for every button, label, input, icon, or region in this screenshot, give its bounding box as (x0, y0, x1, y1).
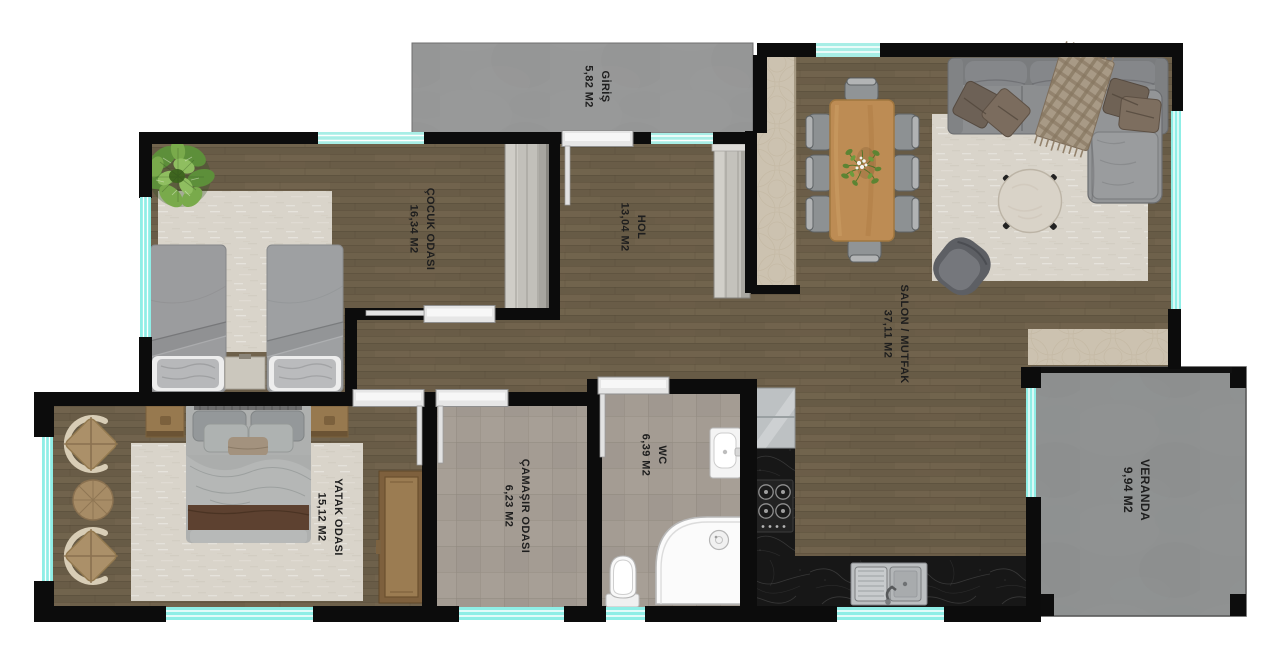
svg-text:ÇAMAŞIR ODASI: ÇAMAŞIR ODASI (519, 459, 531, 553)
svg-text:5,82 M2: 5,82 M2 (583, 65, 595, 108)
svg-text:16,34 M2: 16,34 M2 (408, 204, 420, 253)
svg-text:9,94 M2: 9,94 M2 (1121, 467, 1135, 513)
svg-text:37,11 M2: 37,11 M2 (882, 310, 894, 358)
svg-text:15,12 M2: 15,12 M2 (316, 492, 328, 541)
svg-text:HOL: HOL (635, 215, 647, 239)
svg-text:WC: WC (656, 445, 668, 464)
svg-text:6,23 M2: 6,23 M2 (503, 485, 515, 528)
svg-text:SALON / MUTFAK: SALON / MUTFAK (898, 284, 910, 383)
svg-text:VERANDA: VERANDA (1138, 459, 1152, 521)
svg-text:13,04 M2: 13,04 M2 (619, 202, 631, 251)
svg-text:GİRİŞ: GİRİŞ (599, 71, 612, 103)
svg-text:6,39 M2: 6,39 M2 (640, 434, 652, 477)
svg-text:YATAK ODASI: YATAK ODASI (332, 478, 344, 556)
svg-text:ÇOCUK ODASI: ÇOCUK ODASI (424, 188, 436, 271)
